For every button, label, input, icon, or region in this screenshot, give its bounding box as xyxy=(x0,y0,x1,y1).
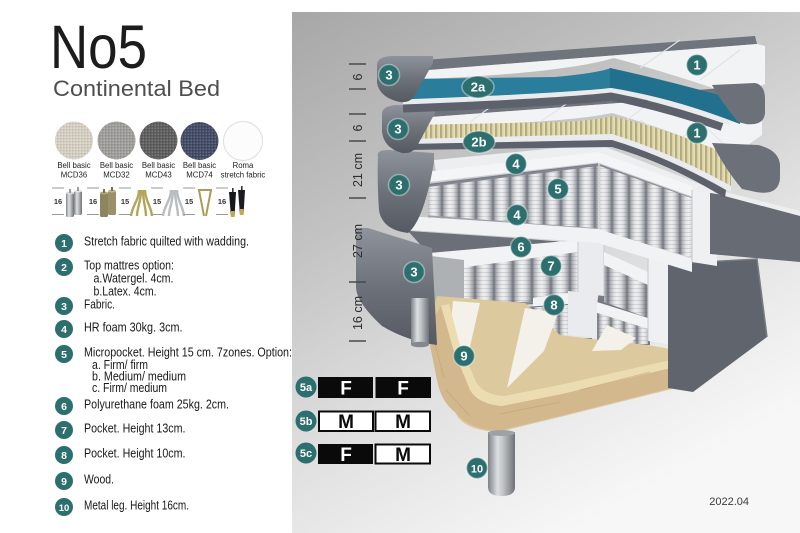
svg-text:8: 8 xyxy=(61,450,67,462)
svg-text:HR foam 30kg. 3cm.: HR foam 30kg. 3cm. xyxy=(84,320,183,335)
svg-text:27 cm: 27 cm xyxy=(351,224,365,258)
svg-text:3: 3 xyxy=(61,301,67,313)
svg-text:M: M xyxy=(395,445,411,466)
svg-text:10: 10 xyxy=(59,503,70,514)
svg-text:9: 9 xyxy=(61,476,67,488)
svg-text:7: 7 xyxy=(61,425,67,437)
svg-text:4: 4 xyxy=(512,157,520,172)
svg-text:3: 3 xyxy=(410,265,417,280)
svg-text:5c: 5c xyxy=(300,448,312,460)
svg-text:3: 3 xyxy=(394,122,401,137)
svg-text:MCD36: MCD36 xyxy=(61,171,87,180)
svg-text:5a: 5a xyxy=(300,382,313,394)
svg-text:Roma: Roma xyxy=(233,161,254,170)
svg-text:15: 15 xyxy=(185,197,193,206)
svg-text:F: F xyxy=(340,445,352,466)
svg-text:10: 10 xyxy=(471,464,483,476)
svg-text:7: 7 xyxy=(547,259,554,274)
svg-text:Polyurethane foam 25kg. 2cm.: Polyurethane foam 25kg. 2cm. xyxy=(84,397,229,412)
svg-text:MCD43: MCD43 xyxy=(145,171,171,180)
svg-text:MCD32: MCD32 xyxy=(103,171,129,180)
svg-text:16 cm: 16 cm xyxy=(351,296,365,330)
svg-text:1: 1 xyxy=(61,238,67,250)
svg-text:Fabric.: Fabric. xyxy=(84,297,115,312)
svg-text:4: 4 xyxy=(513,208,521,223)
svg-text:No5: No5 xyxy=(50,13,147,81)
svg-text:6: 6 xyxy=(517,240,524,255)
svg-text:Pocket. Height 10cm.: Pocket. Height 10cm. xyxy=(84,446,186,461)
svg-text:Pocket. Height 13cm.: Pocket. Height 13cm. xyxy=(84,421,186,436)
svg-text:3: 3 xyxy=(395,178,402,193)
svg-text:9: 9 xyxy=(460,349,467,364)
svg-text:1: 1 xyxy=(693,58,700,73)
svg-text:Bell basic: Bell basic xyxy=(142,161,175,170)
svg-text:stretch fabric: stretch fabric xyxy=(221,171,266,180)
svg-text:15: 15 xyxy=(121,197,129,206)
svg-text:3: 3 xyxy=(385,68,392,83)
svg-text:16: 16 xyxy=(89,197,97,206)
svg-text:Metal leg. Height 16cm.: Metal leg. Height 16cm. xyxy=(84,498,189,513)
svg-text:5: 5 xyxy=(61,349,67,361)
svg-text:16: 16 xyxy=(218,197,226,206)
svg-text:Bell basic: Bell basic xyxy=(100,161,133,170)
svg-text:5b: 5b xyxy=(300,416,313,428)
svg-text:1: 1 xyxy=(693,126,700,141)
svg-text:5: 5 xyxy=(554,182,561,197)
svg-text:15: 15 xyxy=(153,197,161,206)
svg-text:M: M xyxy=(395,412,411,433)
svg-text:2: 2 xyxy=(61,262,67,274)
svg-text:Bell basic: Bell basic xyxy=(183,161,216,170)
svg-text:Bell basic: Bell basic xyxy=(57,161,90,170)
svg-text:Stretch fabric quilted with wa: Stretch fabric quilted with wadding. xyxy=(84,234,249,249)
svg-text:F: F xyxy=(397,379,409,400)
svg-text:MCD74: MCD74 xyxy=(186,171,213,180)
svg-text:4: 4 xyxy=(61,324,67,336)
svg-text:Wood.: Wood. xyxy=(84,472,114,487)
svg-text:2a: 2a xyxy=(471,80,486,95)
svg-text:6: 6 xyxy=(61,401,67,413)
svg-text:21 cm: 21 cm xyxy=(351,153,365,187)
svg-text:8: 8 xyxy=(550,298,557,313)
svg-text:Continental Bed: Continental Bed xyxy=(53,76,220,101)
svg-text:6: 6 xyxy=(351,124,365,131)
svg-text:2022.04: 2022.04 xyxy=(709,496,749,508)
svg-text:6: 6 xyxy=(351,73,365,80)
svg-text:F: F xyxy=(340,379,352,400)
svg-text:M: M xyxy=(338,412,354,433)
svg-text:2b: 2b xyxy=(471,135,486,150)
svg-text:16: 16 xyxy=(54,197,62,206)
svg-text:c. Firm/ medium: c. Firm/ medium xyxy=(92,380,167,395)
